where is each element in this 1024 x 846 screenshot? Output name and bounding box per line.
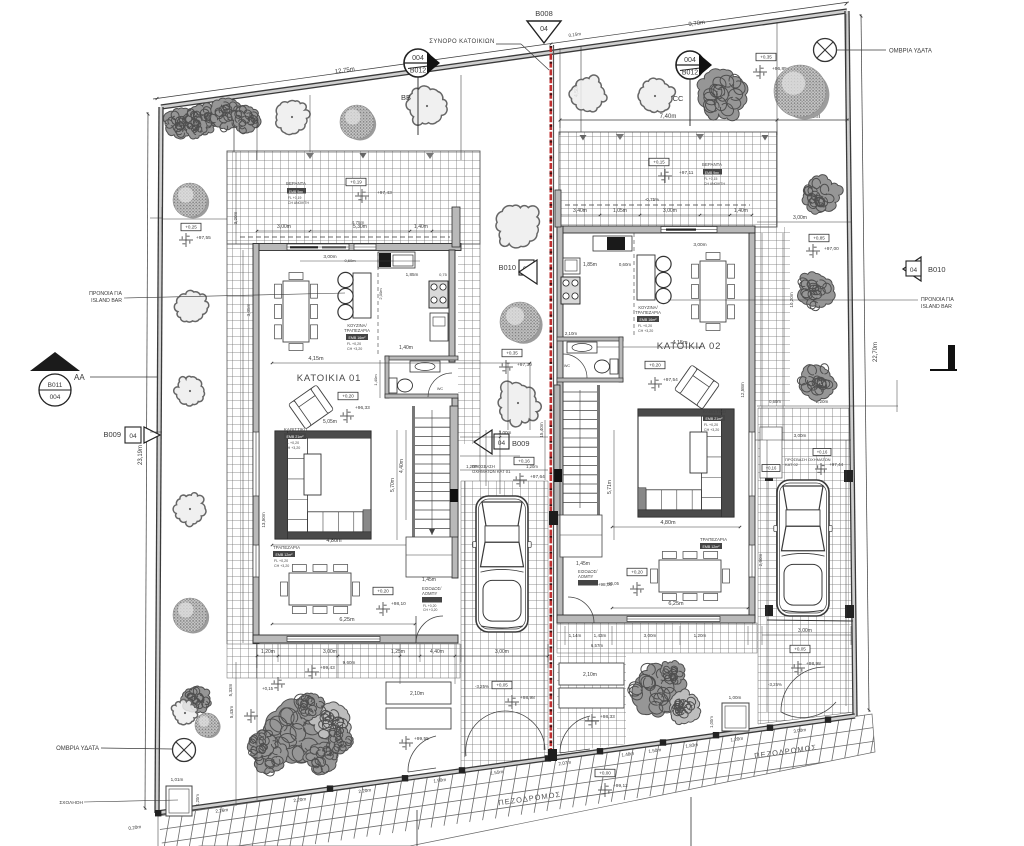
svg-text:AA: AA	[74, 373, 85, 382]
svg-text:+0,35: +0,35	[760, 55, 772, 60]
svg-text:ΒΕΡΑΝΤΑ: ΒΕΡΑΝΤΑ	[286, 181, 306, 186]
svg-text:1,20m: 1,20m	[526, 464, 538, 469]
svg-text:CH +3,20: CH +3,20	[274, 564, 289, 568]
svg-text:CH +3,20: CH +3,20	[423, 608, 438, 612]
svg-text:ΤΡΑΠΕΖΑΡΙΑ: ΤΡΑΠΕΖΑΡΙΑ	[635, 310, 661, 315]
svg-text:B010: B010	[928, 265, 946, 274]
svg-text:4,15m: 4,15m	[308, 356, 324, 362]
svg-text:ΠΡΟΝΟΙΑ ΓΙΑ: ΠΡΟΝΟΙΑ ΓΙΑ	[921, 297, 954, 303]
svg-text:+99,12: +99,12	[613, 783, 628, 789]
svg-text:ΚΑΤ 02: ΚΑΤ 02	[785, 462, 799, 467]
svg-text:5,70m: 5,70m	[390, 478, 396, 492]
svg-text:2,10m: 2,10m	[410, 691, 424, 697]
svg-text:+97,64: +97,64	[530, 474, 545, 480]
svg-text:2,10m: 2,10m	[583, 672, 597, 678]
svg-text:ΚΑΘΙΣΤΙΚΟ: ΚΑΘΙΣΤΙΚΟ	[284, 427, 308, 432]
svg-text:ISLAND BAR: ISLAND BAR	[921, 304, 952, 310]
svg-text:1,20m: 1,20m	[466, 464, 478, 469]
svg-text:+0,05: +0,05	[496, 683, 508, 688]
svg-text:ΤΡΑΠΕΖΑΡΙΑ: ΤΡΑΠΕΖΑΡΙΑ	[273, 545, 300, 550]
svg-text:0,60m: 0,60m	[769, 399, 781, 404]
svg-text:WC: WC	[564, 364, 571, 368]
svg-text:04: 04	[498, 440, 506, 447]
svg-text:FL +0,20: FL +0,20	[704, 423, 718, 427]
svg-text:ΚΑΘΙΣΤΙΚΟ: ΚΑΘΙΣΤΙΚΟ	[703, 409, 727, 414]
svg-text:B010: B010	[498, 263, 516, 272]
svg-text:15,40m: 15,40m	[539, 422, 544, 437]
svg-text:0,75: 0,75	[439, 272, 448, 277]
svg-text:3,05m: 3,05m	[246, 303, 251, 316]
svg-text:+0,19: +0,19	[350, 180, 362, 185]
svg-text:+97,54: +97,54	[663, 377, 678, 383]
svg-text:ΕΜΒ 21m²: ΕΜΒ 21m²	[287, 435, 305, 439]
svg-text:CC: CC	[673, 94, 684, 103]
svg-text:ISLAND BAR: ISLAND BAR	[91, 298, 122, 304]
svg-text:+0,00: +0,00	[599, 771, 611, 776]
svg-text:FL +0,19: FL +0,19	[288, 196, 301, 200]
svg-text:ΚΑΤΟΙΚΙΑ 02: ΚΑΤΟΙΚΙΑ 02	[657, 341, 721, 352]
svg-text:1,45m: 1,45m	[422, 577, 436, 583]
svg-text:0,60m: 0,60m	[619, 262, 632, 267]
svg-text:4,75m: 4,75m	[352, 220, 365, 225]
svg-text:0,60m: 0,60m	[344, 258, 356, 263]
svg-text:1,85m: 1,85m	[583, 262, 597, 268]
svg-text:B012: B012	[410, 68, 426, 75]
svg-text:+97,11: +97,11	[679, 170, 694, 176]
svg-text:+97,44: +97,44	[829, 462, 844, 467]
svg-text:2,00m: 2,00m	[378, 288, 383, 300]
svg-text:+98,98: +98,98	[520, 695, 535, 701]
svg-text:+0,20: +0,20	[631, 570, 643, 575]
svg-text:+98,05: +98,05	[598, 582, 613, 587]
svg-text:3,00m: 3,00m	[277, 224, 291, 230]
svg-text:ΕΜΒ 21m²: ΕΜΒ 21m²	[706, 417, 724, 421]
svg-text:1,45m: 1,45m	[576, 561, 590, 567]
svg-text:B009: B009	[512, 439, 530, 448]
svg-text:+0,15: +0,15	[653, 160, 665, 165]
svg-text:ΛΟΜΠΥ: ΛΟΜΠΥ	[578, 574, 593, 579]
svg-text:ΟΜΒΡΙΑ ΥΔΑΤΑ: ΟΜΒΡΙΑ ΥΔΑΤΑ	[889, 49, 932, 55]
svg-text:ΚΑΤΟΙΚΙΑ 01: ΚΑΤΟΙΚΙΑ 01	[297, 373, 361, 384]
svg-text:ΕΜΒ 9m²: ΕΜΒ 9m²	[289, 190, 304, 194]
svg-text:4,80m: 4,80m	[660, 520, 676, 526]
svg-text:3,00m: 3,00m	[323, 254, 336, 260]
svg-text:ΕΜΒ 16m²: ΕΜΒ 16m²	[349, 336, 367, 340]
svg-text:1,00m: 1,00m	[709, 716, 714, 728]
svg-text:3,00m: 3,00m	[495, 649, 509, 655]
svg-text:3,00m: 3,00m	[663, 208, 677, 214]
svg-text:+98,33: +98,33	[600, 714, 615, 720]
svg-text:1,20m: 1,20m	[694, 633, 707, 638]
svg-text:+99,43: +99,43	[320, 665, 335, 671]
svg-text:+0,20: +0,20	[649, 363, 661, 368]
svg-text:+97,55: +97,55	[196, 235, 211, 241]
svg-text:2,50m: 2,50m	[758, 553, 763, 566]
svg-text:CH +3,20: CH +3,20	[638, 329, 653, 333]
svg-text:1,85m: 1,85m	[406, 272, 419, 277]
svg-text:BB: BB	[401, 93, 411, 102]
svg-text:3,00m: 3,00m	[644, 633, 657, 638]
svg-text:3,00m: 3,00m	[499, 430, 512, 435]
svg-text:+0,25: +0,25	[185, 225, 197, 230]
svg-text:FL +0,20: FL +0,20	[347, 342, 361, 346]
svg-text:CH +3,20: CH +3,20	[347, 347, 362, 351]
svg-text:6,25m: 6,25m	[668, 601, 684, 607]
svg-text:B011: B011	[48, 382, 63, 389]
svg-text:1,14m: 1,14m	[569, 633, 582, 638]
svg-text:+0,16: +0,16	[518, 459, 530, 464]
svg-text:ΕΜΒ 12m²: ΕΜΒ 12m²	[276, 553, 294, 557]
svg-text:+98,98: +98,98	[806, 661, 821, 667]
svg-text:1,40m: 1,40m	[734, 208, 748, 214]
svg-text:ΤΡΑΠΕΖΑΡΙΑ: ΤΡΑΠΕΖΑΡΙΑ	[700, 537, 727, 542]
svg-text:CH +3,20: CH +3,20	[285, 446, 300, 450]
svg-text:3,40m: 3,40m	[573, 208, 587, 214]
svg-text:1,20m: 1,20m	[261, 649, 275, 655]
svg-text:23,19m: 23,19m	[138, 445, 144, 465]
svg-text:+97,00: +97,00	[824, 246, 839, 252]
svg-text:004: 004	[412, 55, 424, 62]
svg-text:1,25m: 1,25m	[391, 649, 405, 655]
svg-text:3,20m: 3,20m	[233, 211, 238, 224]
svg-text:CH ΑΝΟΙΚΤΗ: CH ΑΝΟΙΚΤΗ	[288, 201, 309, 205]
svg-text:1,00m: 1,00m	[729, 695, 742, 700]
svg-text:+0,15: +0,15	[262, 686, 274, 691]
svg-text:3,00m: 3,00m	[794, 433, 807, 438]
svg-text:+0,85: +0,85	[813, 236, 825, 241]
svg-text:04: 04	[129, 433, 137, 440]
svg-text:ΕΜΒ 16m²: ΕΜΒ 16m²	[640, 318, 658, 322]
svg-text:CH +3,20: CH +3,20	[704, 428, 719, 432]
svg-text:-0,75%: -0,75%	[645, 197, 659, 202]
svg-text:5,43m: 5,43m	[229, 706, 234, 719]
svg-text:3,00m: 3,00m	[793, 215, 807, 221]
svg-text:ΠΡΟΝΟΙΑ ΓΙΑ: ΠΡΟΝΟΙΑ ΓΙΑ	[89, 291, 122, 297]
svg-text:-3,25%: -3,25%	[475, 684, 489, 689]
svg-text:3,00m: 3,00m	[693, 242, 706, 248]
svg-text:6,25m: 6,25m	[339, 617, 355, 623]
svg-text:+97,43: +97,43	[377, 190, 392, 196]
svg-text:+0,16: +0,16	[817, 450, 828, 455]
svg-text:ΛΟΜΠΥ: ΛΟΜΠΥ	[422, 591, 437, 596]
svg-text:04: 04	[910, 267, 918, 274]
svg-text:6,57m: 6,57m	[591, 643, 604, 648]
svg-text:B012: B012	[682, 70, 698, 77]
svg-text:-3,25%: -3,25%	[768, 682, 782, 687]
svg-text:FL +0,15: FL +0,15	[704, 177, 717, 181]
svg-text:+96,33: +96,33	[355, 405, 370, 411]
svg-text:1,40m: 1,40m	[414, 224, 428, 230]
svg-text:4,40m: 4,40m	[430, 649, 444, 655]
svg-text:004: 004	[684, 57, 696, 64]
svg-text:5,71m: 5,71m	[607, 480, 613, 494]
svg-text:004: 004	[50, 394, 61, 401]
svg-text:13,50m: 13,50m	[261, 512, 266, 527]
svg-text:9,60m: 9,60m	[343, 660, 356, 665]
svg-text:7,40m: 7,40m	[660, 114, 677, 120]
svg-text:FL +0,20: FL +0,20	[285, 441, 299, 445]
svg-text:CH ΑΝΟΙΚΤΗ: CH ΑΝΟΙΚΤΗ	[704, 182, 725, 186]
svg-text:1,05m: 1,05m	[613, 208, 627, 214]
svg-text:3,00m: 3,00m	[323, 649, 337, 655]
svg-text:ΕΜΒ 12m²: ΕΜΒ 12m²	[703, 545, 721, 549]
svg-text:3,00m: 3,00m	[798, 628, 812, 634]
svg-text:1,01m: 1,01m	[171, 777, 184, 782]
svg-text:12,58m: 12,58m	[740, 382, 745, 397]
svg-text:04: 04	[540, 26, 548, 33]
svg-text:+0,35: +0,35	[506, 351, 518, 356]
svg-text:ΣΧΟΛΗΟΗ: ΣΧΟΛΗΟΗ	[59, 800, 83, 806]
svg-text:+0,16: +0,16	[766, 466, 777, 471]
svg-text:B009: B009	[103, 430, 121, 439]
svg-text:4,40m: 4,40m	[399, 459, 405, 473]
svg-text:10,20m: 10,20m	[789, 292, 794, 307]
svg-text:22,70m: 22,70m	[873, 342, 879, 362]
svg-text:+0,20: +0,20	[342, 394, 354, 399]
svg-text:FL +0,20: FL +0,20	[638, 324, 652, 328]
svg-text:4,80m: 4,80m	[326, 538, 342, 544]
svg-text:ΒΕΡΑΝΤΑ: ΒΕΡΑΝΤΑ	[702, 162, 722, 167]
svg-text:ΤΡΑΠΕΖΑΡΙΑ: ΤΡΑΠΕΖΑΡΙΑ	[344, 328, 370, 333]
svg-text:5,05m: 5,05m	[323, 419, 337, 425]
svg-text:FL +0,20: FL +0,20	[274, 559, 288, 563]
svg-text:ΕΜΒ 9m²: ΕΜΒ 9m²	[705, 171, 720, 175]
svg-text:5,33m: 5,33m	[228, 683, 233, 696]
svg-text:2,10m: 2,10m	[565, 331, 578, 336]
svg-text:+0,20: +0,20	[377, 589, 389, 594]
svg-text:+98,10: +98,10	[391, 601, 406, 607]
svg-text:1,40m: 1,40m	[373, 374, 378, 386]
svg-text:B008: B008	[535, 9, 553, 18]
svg-text:ΣΥΝΟΡΟ ΚΑΤΟΙΚΙΩΝ: ΣΥΝΟΡΟ ΚΑΤΟΙΚΙΩΝ	[429, 39, 494, 45]
svg-text:1,43m: 1,43m	[594, 633, 607, 638]
svg-text:ΟΜΒΡΙΑ ΥΔΑΤΑ: ΟΜΒΡΙΑ ΥΔΑΤΑ	[56, 746, 99, 752]
svg-text:1,20m: 1,20m	[195, 794, 200, 806]
svg-text:1,40m: 1,40m	[399, 345, 413, 351]
svg-text:WC: WC	[437, 387, 444, 391]
svg-text:+0,05: +0,05	[794, 647, 806, 652]
